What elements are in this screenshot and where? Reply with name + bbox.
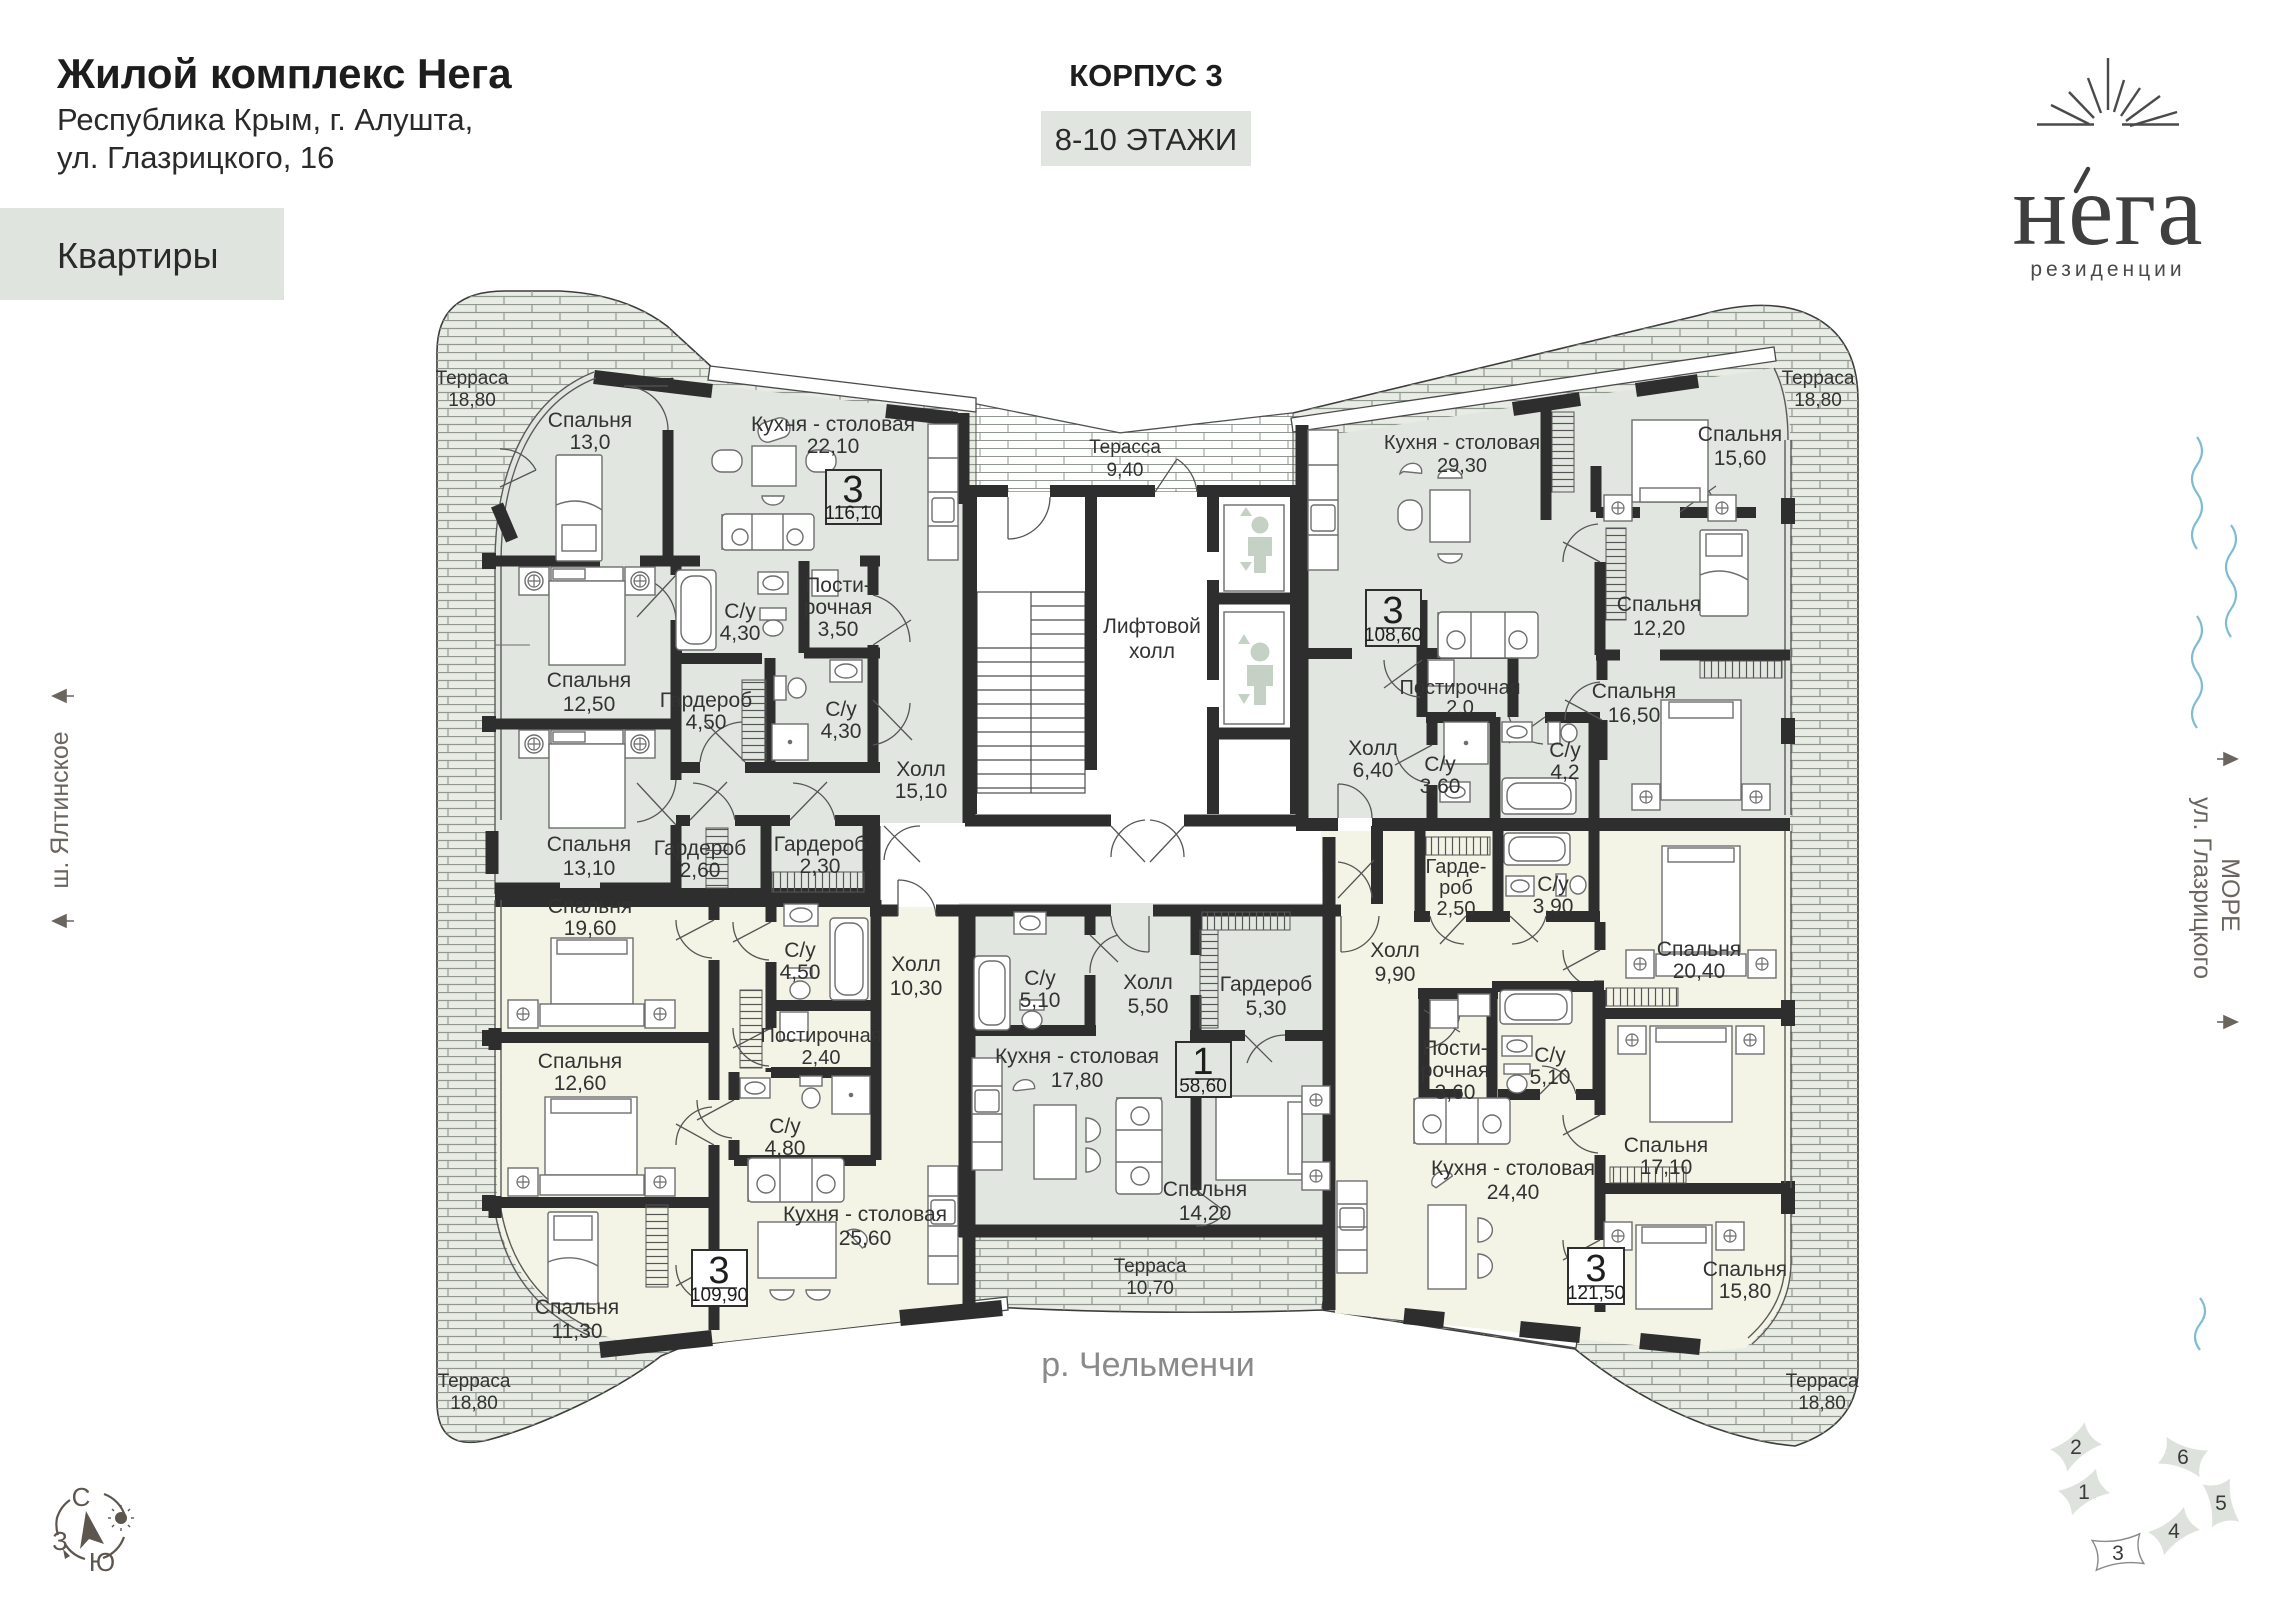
- svg-text:ш. Ялтинское: ш. Ялтинское: [46, 731, 74, 888]
- svg-text:6,40: 6,40: [1353, 759, 1394, 782]
- svg-text:29,30: 29,30: [1437, 455, 1487, 477]
- svg-text:Спальня: Спальня: [535, 1296, 619, 1319]
- svg-text:Спальня: Спальня: [548, 895, 632, 918]
- svg-text:З: З: [52, 1526, 68, 1556]
- svg-text:18,80: 18,80: [1798, 1393, 1846, 1414]
- svg-text:17,80: 17,80: [1051, 1069, 1104, 1092]
- svg-text:2: 2: [2070, 1436, 2082, 1459]
- svg-text:Холл: Холл: [1123, 971, 1173, 994]
- svg-text:ул. Глазрицкого: ул. Глазрицкого: [2188, 797, 2216, 979]
- svg-text:3: 3: [2112, 1542, 2124, 1565]
- svg-text:Спальня: Спальня: [1698, 423, 1782, 446]
- svg-text:Спальня: Спальня: [1624, 1134, 1708, 1157]
- svg-text:10,70: 10,70: [1126, 1278, 1174, 1299]
- svg-text:3,60: 3,60: [1435, 1081, 1476, 1104]
- svg-text:С/у: С/у: [784, 939, 816, 962]
- svg-text:18,80: 18,80: [450, 1393, 498, 1414]
- svg-text:Терраса: Терраса: [438, 1371, 511, 1392]
- svg-text:1: 1: [2078, 1481, 2090, 1504]
- svg-text:С/у: С/у: [724, 600, 756, 623]
- svg-text:С/у: С/у: [769, 1115, 801, 1138]
- svg-text:Спальня: Спальня: [1592, 680, 1676, 703]
- svg-text:нега: нега: [2013, 154, 2204, 267]
- svg-text:Терраса: Терраса: [1786, 1371, 1859, 1392]
- svg-text:С/у: С/у: [1534, 1044, 1566, 1067]
- svg-text:24,40: 24,40: [1487, 1181, 1540, 1204]
- svg-text:р. Чельменчи: р. Чельменчи: [1041, 1346, 1255, 1384]
- svg-text:5: 5: [2215, 1492, 2227, 1515]
- svg-text:4,50: 4,50: [780, 961, 821, 984]
- svg-text:Гардероб: Гардероб: [774, 833, 866, 856]
- svg-text:Спальня: Спальня: [1703, 1258, 1787, 1281]
- svg-text:Гардероб: Гардероб: [660, 689, 752, 712]
- svg-text:Кухня - столовая: Кухня - столовая: [1431, 1157, 1595, 1180]
- svg-text:10,30: 10,30: [890, 977, 943, 1000]
- svg-text:Спальня: Спальня: [548, 409, 632, 432]
- svg-text:С/у: С/у: [1024, 967, 1056, 990]
- svg-text:Спальня: Спальня: [1617, 593, 1701, 616]
- svg-text:резиденции: резиденции: [2030, 258, 2185, 281]
- svg-text:Терасса: Терасса: [1089, 437, 1161, 458]
- svg-text:Холл: Холл: [891, 953, 941, 976]
- svg-text:Холл: Холл: [1348, 737, 1398, 760]
- svg-text:18,80: 18,80: [1794, 390, 1842, 411]
- svg-text:15,80: 15,80: [1719, 1280, 1772, 1303]
- svg-text:4,80: 4,80: [765, 1137, 806, 1160]
- svg-text:Кухня - столовая: Кухня - столовая: [783, 1203, 947, 1226]
- svg-text:Холл: Холл: [896, 758, 946, 781]
- svg-text:2,40: 2,40: [802, 1047, 841, 1069]
- svg-text:Жилой комплекс Нега: Жилой комплекс Нега: [56, 50, 512, 97]
- svg-text:12,50: 12,50: [563, 693, 616, 716]
- svg-text:121,50: 121,50: [1567, 1283, 1625, 1304]
- svg-text:6: 6: [2177, 1446, 2189, 1469]
- svg-text:Кухня - столовая: Кухня - столовая: [995, 1045, 1159, 1068]
- svg-text:Холл: Холл: [1370, 939, 1420, 962]
- svg-text:С/у: С/у: [1424, 753, 1456, 776]
- svg-text:3,60: 3,60: [1420, 775, 1461, 798]
- svg-text:2,0: 2,0: [1446, 697, 1474, 719]
- svg-text:Лифтовой: Лифтовой: [1103, 615, 1201, 638]
- svg-text:58,60: 58,60: [1179, 1076, 1227, 1097]
- svg-text:МОРЕ: МОРЕ: [2216, 858, 2244, 932]
- svg-text:Республика Крым, г. Алушта,: Республика Крым, г. Алушта,: [57, 102, 473, 137]
- svg-text:3,90: 3,90: [1533, 895, 1574, 918]
- svg-text:С/у: С/у: [1537, 873, 1569, 896]
- svg-text:8-10 ЭТАЖИ: 8-10 ЭТАЖИ: [1055, 122, 1237, 157]
- svg-text:12,60: 12,60: [554, 1072, 607, 1095]
- svg-text:холл: холл: [1129, 640, 1175, 663]
- svg-text:4,2: 4,2: [1550, 761, 1579, 784]
- svg-text:2,30: 2,30: [800, 855, 841, 878]
- svg-text:17,10: 17,10: [1640, 1156, 1693, 1179]
- svg-text:9,40: 9,40: [1107, 460, 1144, 481]
- svg-text:15,60: 15,60: [1714, 447, 1767, 470]
- svg-text:С/у: С/у: [1549, 739, 1581, 762]
- svg-text:Постирочная: Постирочная: [1399, 677, 1520, 699]
- svg-text:5,10: 5,10: [1530, 1066, 1571, 1089]
- svg-text:11,30: 11,30: [552, 1320, 603, 1343]
- svg-text:116,10: 116,10: [825, 503, 882, 524]
- svg-text:Спальня: Спальня: [1163, 1178, 1247, 1201]
- svg-text:3,50: 3,50: [818, 618, 859, 641]
- svg-text:2,60: 2,60: [680, 859, 721, 882]
- svg-text:Гардероб: Гардероб: [654, 837, 746, 860]
- svg-text:20,40: 20,40: [1673, 960, 1726, 983]
- svg-text:рочная: рочная: [1421, 1059, 1490, 1082]
- svg-text:Пости-: Пости-: [805, 574, 871, 597]
- svg-text:Квартиры: Квартиры: [57, 235, 218, 276]
- svg-text:13,0: 13,0: [570, 431, 611, 454]
- svg-text:9,90: 9,90: [1375, 963, 1416, 986]
- svg-text:4,50: 4,50: [686, 711, 727, 734]
- svg-text:15,10: 15,10: [895, 780, 948, 803]
- svg-text:13,10: 13,10: [563, 857, 616, 880]
- svg-text:Гарде-: Гарде-: [1426, 856, 1487, 878]
- svg-text:Спальня: Спальня: [1657, 938, 1741, 961]
- svg-text:4,30: 4,30: [821, 720, 862, 743]
- svg-text:ул. Глазрицкого, 16: ул. Глазрицкого, 16: [57, 140, 334, 175]
- svg-text:Спальня: Спальня: [547, 833, 631, 856]
- svg-text:4,30: 4,30: [720, 622, 761, 645]
- svg-text:22,10: 22,10: [807, 435, 860, 458]
- svg-text:КОРПУС 3: КОРПУС 3: [1069, 58, 1223, 93]
- svg-text:Терраса: Терраса: [1114, 1256, 1187, 1277]
- svg-text:Спальня: Спальня: [547, 669, 631, 692]
- svg-text:4: 4: [2168, 1520, 2180, 1543]
- svg-text:Терраса: Терраса: [436, 368, 509, 389]
- svg-text:5,30: 5,30: [1246, 997, 1287, 1020]
- svg-text:Кухня - столовая: Кухня - столовая: [751, 413, 915, 436]
- svg-text:Терраса: Терраса: [1782, 368, 1855, 389]
- svg-text:роб: роб: [1439, 877, 1473, 899]
- svg-text:С/у: С/у: [825, 698, 857, 721]
- svg-text:Спальня: Спальня: [538, 1050, 622, 1073]
- svg-text:Кухня - столовая: Кухня - столовая: [1384, 432, 1540, 454]
- svg-text:С: С: [72, 1482, 91, 1512]
- svg-text:25,60: 25,60: [839, 1227, 892, 1250]
- svg-text:16,50: 16,50: [1608, 704, 1661, 727]
- svg-text:14,20: 14,20: [1179, 1202, 1232, 1225]
- svg-text:12,20: 12,20: [1633, 617, 1686, 640]
- svg-text:18,80: 18,80: [448, 390, 496, 411]
- svg-text:Гардероб: Гардероб: [1220, 973, 1312, 996]
- svg-text:109,90: 109,90: [690, 1285, 748, 1306]
- svg-text:Ю: Ю: [89, 1547, 115, 1577]
- svg-text:5,50: 5,50: [1128, 995, 1169, 1018]
- svg-text:108,60: 108,60: [1364, 625, 1422, 646]
- svg-text:рочная: рочная: [804, 596, 873, 619]
- svg-text:Пости-: Пости-: [1422, 1037, 1488, 1060]
- svg-text:Постирочная: Постирочная: [760, 1025, 881, 1047]
- svg-text:5,10: 5,10: [1020, 989, 1061, 1012]
- svg-text:19,60: 19,60: [564, 917, 617, 940]
- svg-text:2,50: 2,50: [1437, 898, 1476, 920]
